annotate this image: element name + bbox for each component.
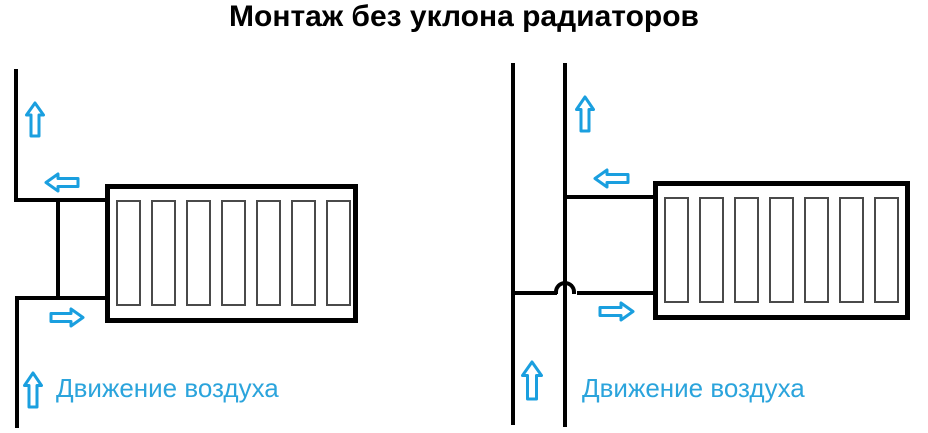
right-bottom-return-pipe-right-segment — [577, 291, 655, 295]
air-up-arrow-icon — [521, 360, 543, 401]
radiator-section — [769, 197, 794, 303]
pipe-crossover-hop — [554, 281, 576, 294]
air-flow-label: Движение воздуха — [56, 373, 279, 404]
left-bypass-pipe — [56, 198, 60, 300]
radiator-section — [221, 200, 246, 306]
diagram-canvas: Монтаж без уклона радиаторов Движение во… — [0, 0, 928, 433]
radiator-section — [734, 197, 759, 303]
left-top-supply-pipe — [14, 198, 109, 202]
radiator-right-sections — [658, 186, 899, 303]
air-left-arrow-icon — [593, 168, 630, 189]
radiator-section — [326, 200, 351, 306]
left-riser-bottom-pipe — [15, 296, 19, 428]
air-right-arrow-icon — [49, 307, 85, 328]
air-flow-label: Движение воздуха — [582, 373, 805, 404]
radiator-section — [116, 200, 141, 306]
radiator-section — [839, 197, 864, 303]
right-bottom-return-pipe-left-segment — [511, 291, 557, 295]
right-riser-left-pipe — [511, 63, 515, 425]
right-top-supply-pipe — [563, 195, 655, 199]
radiator-right — [653, 181, 910, 320]
air-up-arrow-icon — [25, 101, 45, 138]
left-bottom-return-pipe — [15, 296, 109, 300]
radiator-section — [874, 197, 899, 303]
radiator-left — [105, 184, 358, 323]
radiator-section — [151, 200, 176, 306]
right-riser-right-pipe — [563, 63, 567, 427]
air-up-arrow-icon — [575, 95, 595, 133]
air-right-arrow-icon — [598, 301, 635, 322]
page-title: Монтаж без уклона радиаторов — [0, 0, 928, 34]
radiator-section — [804, 197, 829, 303]
air-up-arrow-icon — [23, 371, 43, 409]
air-left-arrow-icon — [44, 172, 80, 193]
radiator-section — [699, 197, 724, 303]
radiator-section — [256, 200, 281, 306]
left-riser-top-pipe — [14, 69, 18, 202]
radiator-section — [186, 200, 211, 306]
radiator-section — [291, 200, 316, 306]
radiator-left-sections — [110, 189, 351, 306]
radiator-section — [664, 197, 689, 303]
